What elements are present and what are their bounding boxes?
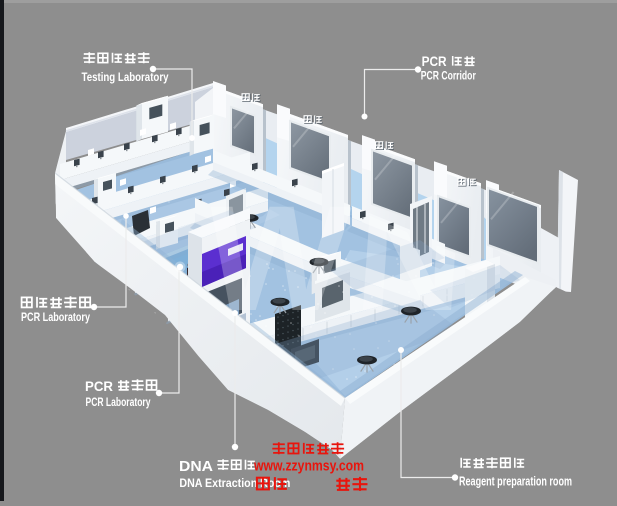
svg-text:PCR Laboratory: PCR Laboratory [21,310,90,324]
svg-text:PCR: PCR [422,54,447,69]
svg-text:Testing Laboratory: Testing Laboratory [82,70,169,84]
svg-text:PCR: PCR [85,379,113,394]
svg-text:PCR Corridor: PCR Corridor [421,71,476,83]
svg-text:Reagent preparation room: Reagent preparation room [459,475,572,489]
svg-text:DNA Extraction Room: DNA Extraction Room [179,476,290,490]
svg-text:www.zzynmsy.com: www.zzynmsy.com [253,459,364,475]
svg-text:DNA: DNA [179,458,213,475]
svg-text:PCR Laboratory: PCR Laboratory [86,395,151,409]
